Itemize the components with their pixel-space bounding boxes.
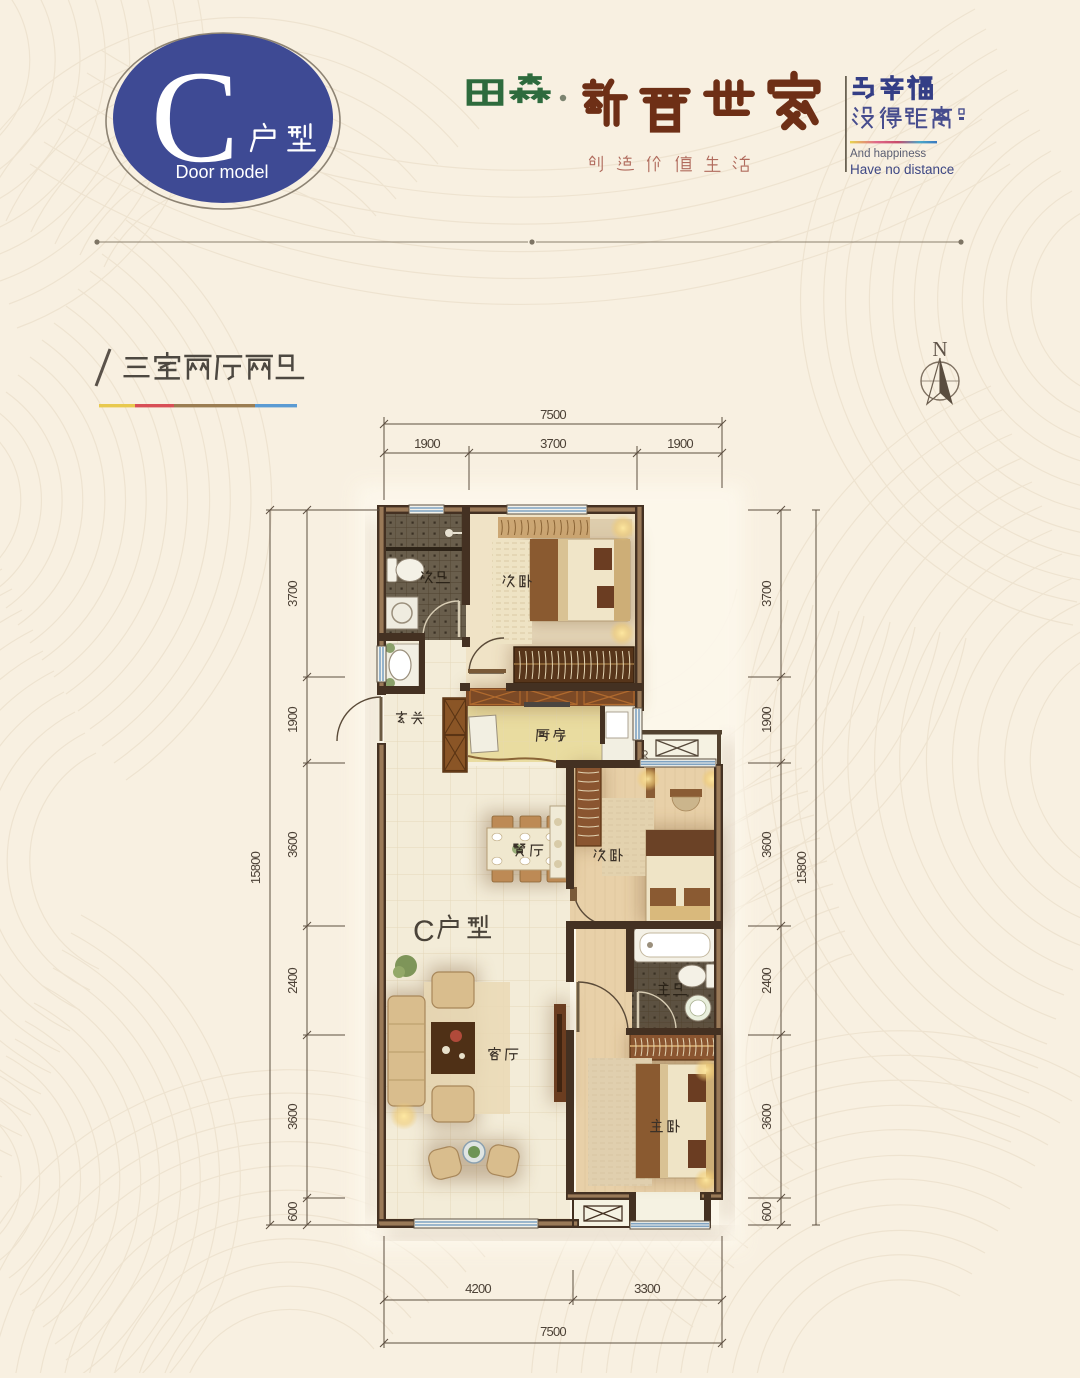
svg-text:3700: 3700	[285, 581, 300, 607]
svg-text:600: 600	[759, 1202, 774, 1222]
svg-text:3600: 3600	[285, 1104, 300, 1130]
svg-text:15800: 15800	[248, 851, 263, 884]
svg-text:Have no distance: Have no distance	[850, 162, 954, 177]
svg-text:1900: 1900	[759, 707, 774, 733]
svg-text:2400: 2400	[759, 968, 774, 994]
svg-text:600: 600	[285, 1202, 300, 1222]
svg-text:N: N	[932, 337, 947, 361]
svg-text:4200: 4200	[465, 1281, 491, 1296]
svg-text:2400: 2400	[285, 968, 300, 994]
svg-text:C: C	[413, 915, 435, 948]
svg-text:1900: 1900	[285, 707, 300, 733]
svg-text:15800: 15800	[794, 851, 809, 884]
svg-text:3300: 3300	[634, 1281, 660, 1296]
svg-text:3600: 3600	[285, 832, 300, 858]
svg-text:3700: 3700	[540, 436, 566, 451]
svg-text:And happiness: And happiness	[850, 148, 926, 160]
svg-text:7500: 7500	[540, 407, 566, 422]
svg-text:3600: 3600	[759, 1104, 774, 1130]
svg-text:1900: 1900	[667, 436, 693, 451]
svg-text:3600: 3600	[759, 832, 774, 858]
svg-text:1900: 1900	[414, 436, 440, 451]
svg-text:3700: 3700	[759, 581, 774, 607]
svg-text:Door model: Door model	[175, 162, 268, 182]
svg-text:7500: 7500	[540, 1324, 566, 1339]
